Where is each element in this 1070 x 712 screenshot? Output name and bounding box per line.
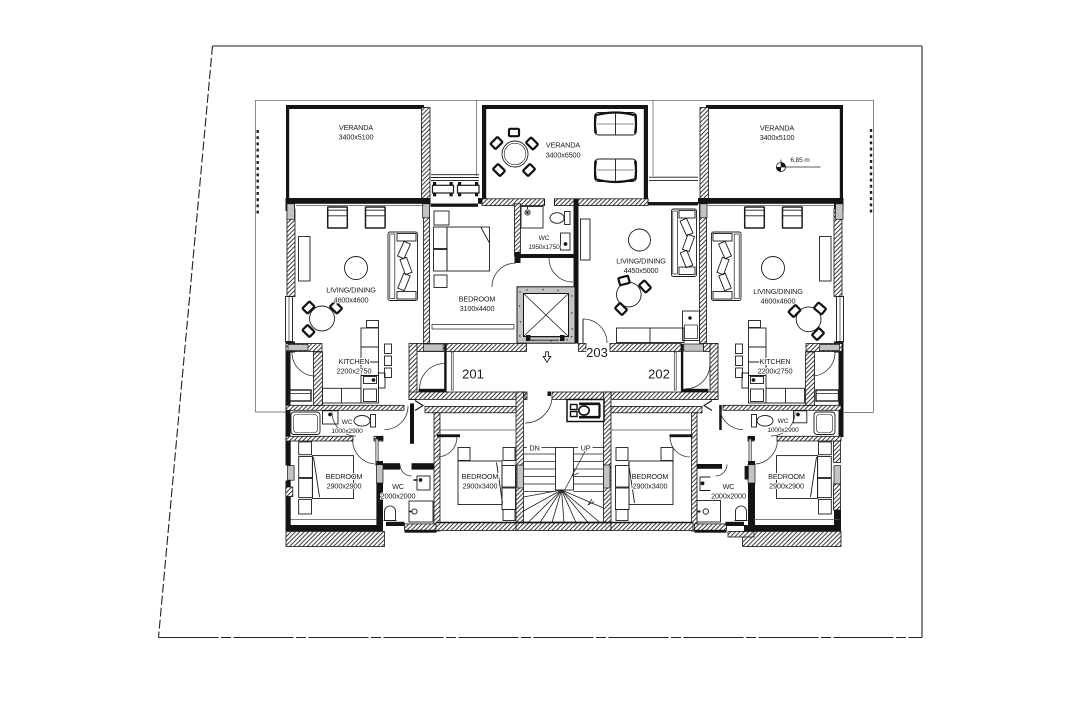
svg-text:BEDROOM: BEDROOM — [768, 472, 805, 481]
svg-text:2900x3400: 2900x3400 — [633, 482, 668, 491]
svg-text:WC: WC — [778, 418, 789, 425]
svg-text:WC: WC — [723, 482, 735, 491]
svg-text:VERANDA: VERANDA — [546, 141, 581, 150]
svg-text:1000x2900: 1000x2900 — [331, 428, 363, 435]
svg-text:2000x2000: 2000x2000 — [711, 492, 746, 501]
svg-text:3400x6500: 3400x6500 — [546, 151, 581, 160]
svg-text:4600x4600: 4600x4600 — [334, 296, 369, 305]
svg-text:BEDROOM: BEDROOM — [459, 295, 496, 304]
svg-text:3400x5100: 3400x5100 — [760, 133, 795, 142]
svg-text:LIVING/DINING: LIVING/DINING — [753, 287, 803, 296]
svg-text:VERANDA: VERANDA — [339, 123, 374, 132]
svg-text:KITCHEN: KITCHEN — [339, 357, 370, 366]
svg-text:2900x2900: 2900x2900 — [769, 482, 804, 491]
svg-text:1950x1750: 1950x1750 — [528, 244, 560, 251]
svg-text:2900x3400: 2900x3400 — [463, 482, 498, 491]
svg-text:3400x5100: 3400x5100 — [339, 133, 374, 142]
svg-text:WC: WC — [539, 235, 550, 242]
svg-text:BEDROOM: BEDROOM — [462, 472, 499, 481]
svg-text:LIVING/DINING: LIVING/DINING — [616, 257, 666, 266]
svg-text:202: 202 — [648, 367, 670, 382]
svg-text:4600x4600: 4600x4600 — [761, 297, 796, 306]
svg-text:BEDROOM: BEDROOM — [632, 472, 669, 481]
svg-text:DN: DN — [529, 444, 539, 453]
svg-text:6.85 m: 6.85 m — [790, 157, 810, 164]
svg-text:2200x2750: 2200x2750 — [337, 367, 372, 376]
svg-text:3100x4400: 3100x4400 — [460, 304, 495, 313]
svg-text:VERANDA: VERANDA — [760, 124, 795, 133]
svg-text:2000x2000: 2000x2000 — [381, 492, 416, 501]
svg-text:WC: WC — [392, 482, 404, 491]
svg-text:2900x2900: 2900x2900 — [327, 482, 362, 491]
svg-text:1000x2900: 1000x2900 — [767, 427, 799, 434]
svg-text:2200x2750: 2200x2750 — [758, 367, 793, 376]
svg-text:203: 203 — [586, 345, 608, 360]
svg-text:WC: WC — [342, 419, 353, 426]
svg-text:LIVING/DINING: LIVING/DINING — [326, 286, 376, 295]
svg-text:UP: UP — [581, 444, 591, 453]
svg-text:201: 201 — [462, 367, 484, 382]
svg-text:4450x5000: 4450x5000 — [624, 266, 659, 275]
svg-text:KITCHEN: KITCHEN — [760, 357, 791, 366]
svg-text:BEDROOM: BEDROOM — [326, 472, 363, 481]
